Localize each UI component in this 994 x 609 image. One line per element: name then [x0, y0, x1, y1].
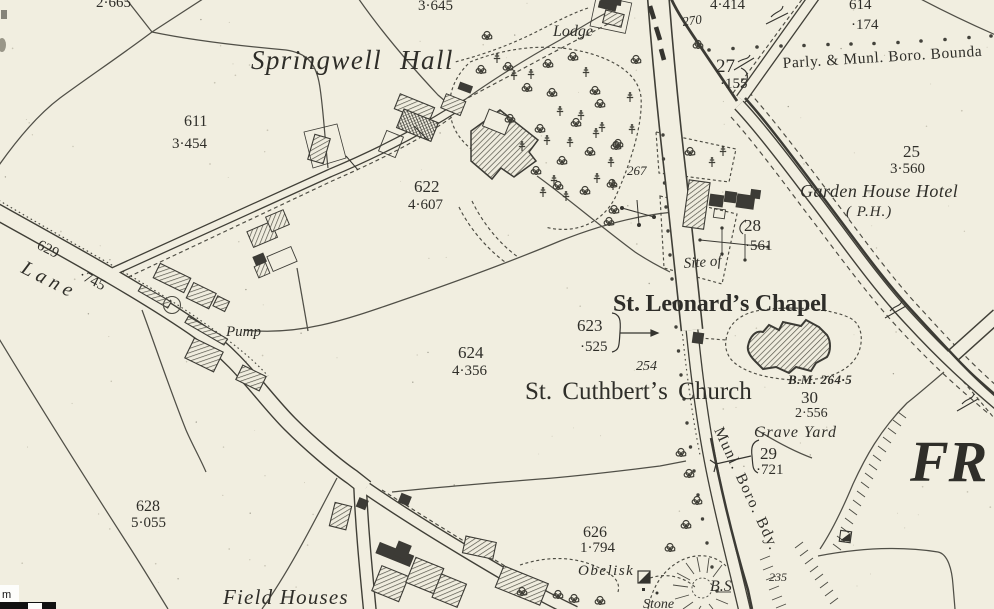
svg-text:628: 628 [136, 498, 160, 515]
svg-text:B.S: B.S [710, 578, 732, 595]
svg-text:25: 25 [903, 142, 920, 161]
svg-text:·525: ·525 [580, 339, 608, 355]
svg-text:3·645: 3·645 [418, 0, 453, 14]
svg-text:·721: ·721 [756, 462, 784, 478]
svg-text:270: 270 [681, 11, 703, 29]
svg-text:·561: ·561 [745, 238, 773, 254]
svg-text:30: 30 [801, 388, 818, 407]
svg-text:3·454: 3·454 [172, 136, 207, 152]
svg-text:2·665: 2·665 [96, 0, 131, 11]
svg-text:254: 254 [636, 359, 657, 374]
svg-text:235: 235 [769, 570, 787, 584]
svg-text:( P.H.): ( P.H.) [846, 204, 892, 220]
svg-text:611: 611 [184, 113, 207, 130]
svg-text:St. Leonardʼs Chapel: St. Leonardʼs Chapel [613, 291, 828, 317]
svg-text:3·560: 3·560 [890, 161, 925, 177]
svg-text:28: 28 [744, 216, 761, 235]
svg-text:267: 267 [627, 163, 647, 178]
svg-text:2·556: 2·556 [795, 406, 828, 421]
svg-text:614: 614 [849, 0, 872, 13]
svg-text:4·414: 4·414 [710, 0, 745, 13]
svg-text:626: 626 [583, 524, 607, 541]
svg-text:Stone: Stone [643, 597, 674, 609]
svg-text:Obelisk: Obelisk [578, 563, 634, 579]
svg-text:FR: FR [909, 429, 987, 494]
svg-text:St. Cuthbertʼs Church: St. Cuthbertʼs Church [525, 378, 752, 405]
svg-text:Pump: Pump [225, 324, 261, 340]
svg-text:29: 29 [760, 444, 777, 463]
svg-text:B.M. 264·5: B.M. 264·5 [787, 372, 852, 387]
svg-text:4·607: 4·607 [408, 197, 443, 213]
svg-text:5·055: 5·055 [131, 515, 166, 531]
svg-text:622: 622 [414, 177, 440, 196]
svg-text:623: 623 [577, 316, 603, 335]
svg-text:Garden House Hotel: Garden House Hotel [800, 181, 958, 201]
svg-text:Grave Yard: Grave Yard [754, 424, 837, 441]
svg-text:m: m [2, 589, 11, 601]
svg-text:·155: ·155 [720, 76, 748, 92]
svg-text:1·794: 1·794 [580, 540, 615, 556]
svg-text:Lodge: Lodge [552, 23, 593, 40]
svg-text:Springwell Hall: Springwell Hall [251, 45, 454, 75]
svg-text:Site of: Site of [683, 253, 724, 272]
svg-text:624: 624 [458, 343, 484, 362]
svg-text:4·356: 4·356 [452, 363, 487, 379]
svg-text:·174: ·174 [851, 17, 879, 33]
svg-text:27: 27 [716, 56, 735, 77]
svg-text:Field Houses: Field Houses [222, 585, 349, 609]
